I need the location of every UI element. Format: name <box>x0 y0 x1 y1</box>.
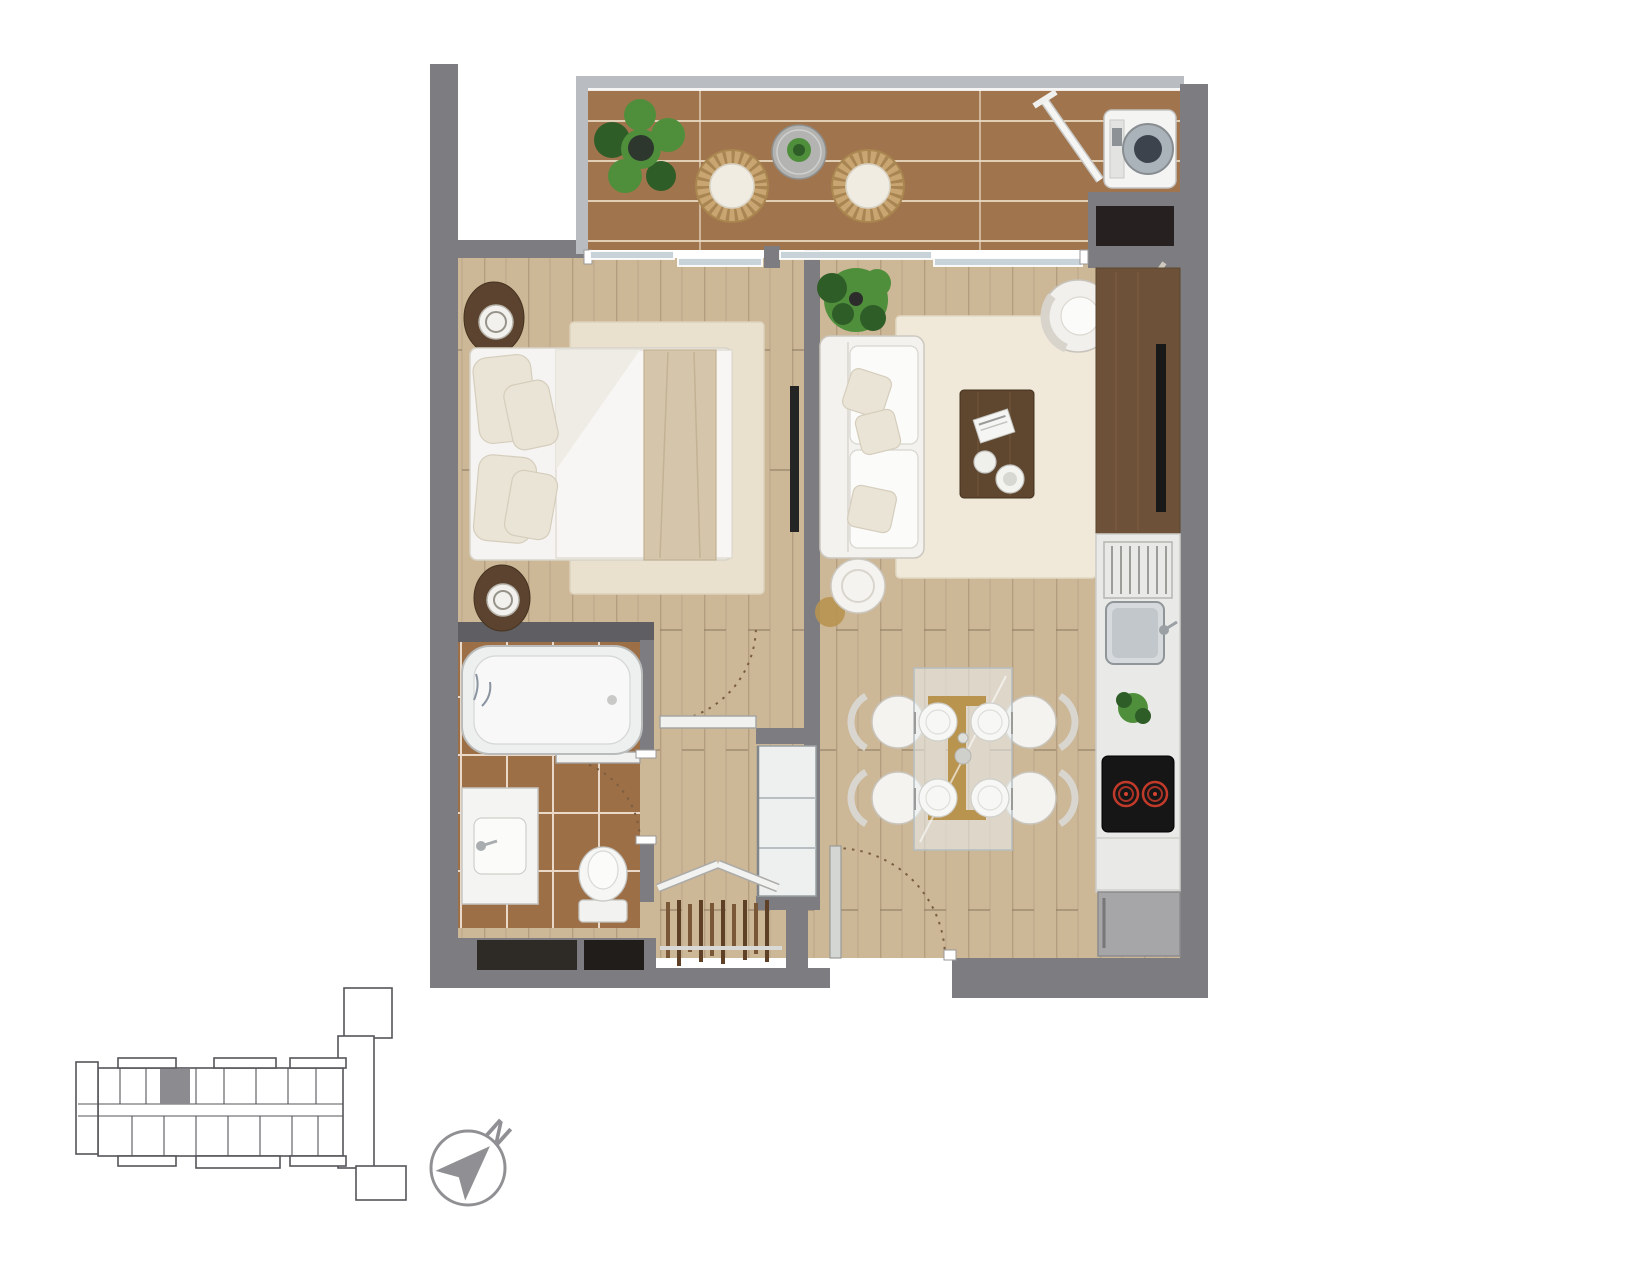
bed-blanket <box>644 350 716 560</box>
lamp-bottom <box>487 584 519 616</box>
living-sliding-panel-2 <box>934 258 1082 266</box>
bathroom-door-jamb-top <box>636 750 656 758</box>
wicker-chair-left <box>696 150 768 222</box>
floor-plan-page: N <box>0 0 1649 1274</box>
shelved-closet <box>758 746 816 896</box>
bottom-wall-middle <box>656 968 830 988</box>
bottom-wall-right <box>952 958 1208 998</box>
keyplan-left-cap <box>76 1062 98 1154</box>
floor-plan-canvas: N <box>0 0 1649 1274</box>
sofa <box>820 336 924 558</box>
table-centerpiece <box>955 748 971 764</box>
keyplan-top-tower <box>344 988 392 1038</box>
bedroom-south-wall <box>756 728 820 744</box>
tub-drain <box>607 695 617 705</box>
bedroom-door-leaf <box>660 716 756 728</box>
bedroom <box>464 282 799 631</box>
compass-north-label: N <box>479 1113 517 1152</box>
right-wall <box>1180 84 1208 998</box>
living-sliding-panel-1 <box>780 251 932 259</box>
balcony-storage-niche <box>1096 206 1174 246</box>
vanity-sink <box>462 788 538 904</box>
service-shaft-right <box>584 940 644 970</box>
double-bed <box>470 348 732 560</box>
notch-wall <box>456 240 588 258</box>
balcony-railing-top <box>576 76 1184 90</box>
bathroom-right-wall-lower <box>640 838 654 902</box>
key-plan <box>76 988 406 1200</box>
living-tv <box>1156 344 1166 512</box>
lamp-top <box>479 305 513 339</box>
fern-pot <box>628 135 654 161</box>
bathroom-door-jamb-bottom <box>636 836 656 844</box>
bedroom-tv <box>790 386 799 532</box>
balcony-table <box>772 125 826 179</box>
toilet <box>579 847 627 922</box>
refrigerator <box>1098 892 1180 956</box>
coffee-table <box>960 390 1034 498</box>
bedroom-sliding-panel-1 <box>590 251 674 259</box>
bowl-small <box>974 451 996 473</box>
entry-door-jamb <box>944 950 956 960</box>
wicker-chair-right <box>832 150 904 222</box>
compass: N <box>431 1113 517 1205</box>
balcony-railing-left <box>576 76 588 254</box>
service-shaft-left <box>477 940 577 970</box>
washing-machine <box>1104 110 1176 188</box>
slider-pillar <box>764 246 780 268</box>
slider-jamb-right <box>1080 250 1088 264</box>
bathtub <box>462 646 642 754</box>
nightstand-top <box>464 282 524 354</box>
railing-glass-line <box>588 88 1182 91</box>
nightstand-bottom <box>474 565 530 631</box>
cooktop <box>1102 756 1174 832</box>
hall-stub-wall <box>786 908 808 970</box>
entry-door-leaf <box>830 846 841 958</box>
bedroom-sliding-panel-2 <box>678 258 762 266</box>
keyplan-highlighted-unit <box>160 1069 190 1104</box>
kitchen <box>1096 268 1180 956</box>
keyplan-bottom-tower <box>356 1166 406 1200</box>
table-centerpiece-small <box>958 733 968 743</box>
left-wall <box>430 64 458 988</box>
keyplan-main-slab <box>98 1068 343 1156</box>
